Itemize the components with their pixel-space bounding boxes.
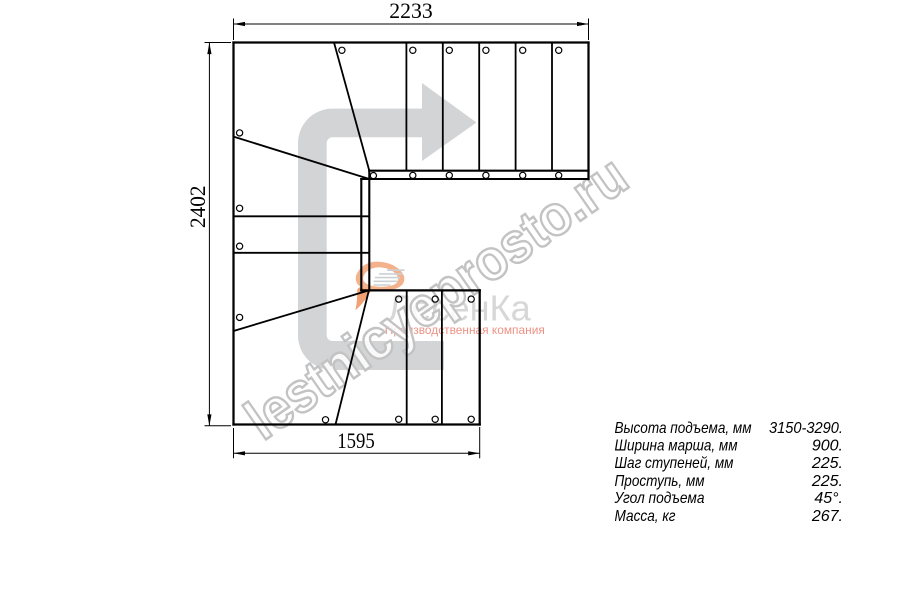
svg-text:267.: 267. xyxy=(811,508,843,525)
svg-text:Проступь, мм: Проступь, мм xyxy=(615,473,705,490)
svg-text:45°.: 45°. xyxy=(814,490,843,507)
svg-text:Угол подъема: Угол подъема xyxy=(614,490,705,507)
svg-text:3150-3290.: 3150-3290. xyxy=(769,420,843,437)
svg-text:Шаг ступеней, мм: Шаг ступеней, мм xyxy=(615,455,734,472)
svg-text:2402: 2402 xyxy=(185,186,210,229)
svg-text:225.: 225. xyxy=(811,455,843,472)
svg-text:2233: 2233 xyxy=(389,0,433,23)
svg-text:900.: 900. xyxy=(812,438,843,455)
svg-text:225.: 225. xyxy=(811,473,843,490)
svg-text:1595: 1595 xyxy=(337,428,375,453)
svg-text:Масса, кг: Масса, кг xyxy=(615,508,676,525)
svg-text:Высота подъема, мм: Высота подъема, мм xyxy=(615,420,752,437)
svg-text:Ширина марша, мм: Ширина марша, мм xyxy=(615,438,738,455)
